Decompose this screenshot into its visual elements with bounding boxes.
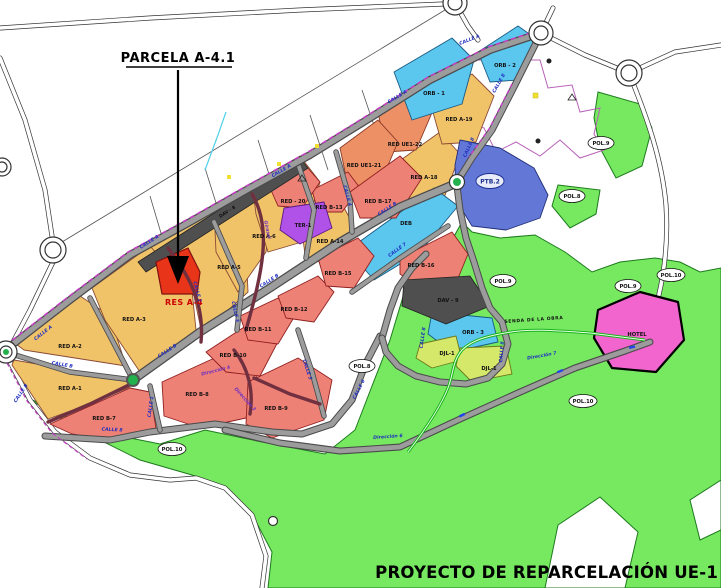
parcel-label-b12: RED B-12: [281, 307, 308, 313]
parcel-label-b7: RED B-7: [92, 416, 116, 422]
parcel-label-b16: RED B-16: [408, 263, 435, 269]
zone-label-pol9: POL.9: [494, 279, 511, 285]
yellow-marker-icon: [277, 162, 281, 166]
parcel-label-a3: RED A-3: [122, 317, 146, 323]
parcel-label-a14: RED A-14: [316, 239, 343, 245]
stream-line: [205, 112, 226, 170]
parcel-label-a19: RED A-19: [445, 117, 472, 123]
street-label-calle-a: CALLE A: [459, 33, 482, 47]
reparcelacion-map: POL.9 POL.8 POL.9 POL.8 POL.10 POL.9 POL…: [0, 0, 721, 588]
parcel-label-b11: RED B-11: [245, 327, 272, 333]
parcel-label-djl1: DJL-1: [439, 351, 455, 357]
zone-label-pol10: POL.10: [661, 273, 682, 279]
parcel-label-ue1-21: RED UE1-21: [347, 163, 382, 169]
parcel-label-ue1-22: RED UE1-22: [388, 142, 423, 148]
parcel-label-b9: RED B-9: [264, 406, 288, 412]
page-title: PROYECTO DE REPARCELACIÓN UE-1: [375, 563, 718, 582]
parcel-label-b10: RED B-10: [220, 353, 247, 359]
zone-label-pol10: POL.10: [162, 447, 183, 453]
parcel-label-ter1: TER-1: [295, 223, 312, 229]
parcel-label-b17: RED B-17: [365, 199, 392, 205]
zone-label-pol8: POL.8: [353, 364, 370, 370]
parcel-label-red20: RED - 20: [281, 199, 306, 205]
parcel-label-a18: RED A-18: [410, 175, 437, 181]
parcel-label-dav9: DAV - 9: [437, 298, 459, 304]
parcel-label-hotel: HOTEL: [627, 332, 647, 338]
zone-label-pol9: POL.9: [592, 141, 609, 147]
map-canvas: POL.9 POL.8 POL.9 POL.8 POL.10 POL.9 POL…: [0, 0, 721, 588]
parcel-label-djl1: DJL-1: [481, 366, 497, 372]
parcel-label-b15: RED B-15: [325, 271, 352, 277]
zone-label-pol9: POL.9: [619, 284, 636, 290]
parcel-label-b8: RED B-8: [185, 392, 209, 398]
parcel-label-orb3: ORB - 3: [462, 330, 484, 336]
street-label-calle-8: CALLE 8: [101, 426, 123, 433]
parcel-label-a2: RED A-2: [58, 344, 82, 350]
parcel-label-a5: RED A-5: [217, 265, 241, 271]
parcel-label-deb: DEB: [400, 221, 412, 227]
parcel-label-orb2: ORB - 2: [494, 63, 516, 69]
yellow-marker-icon: [227, 175, 231, 179]
parcel-label-a6: RED A-6: [252, 234, 276, 240]
zone-label-pol10: POL.10: [573, 399, 594, 405]
parcel-label-a1: RED A-1: [58, 386, 82, 392]
dot-marker-icon: [536, 139, 541, 144]
parcel-label-ptb2: PTB.2: [480, 179, 500, 186]
yellow-marker-icon: [533, 93, 538, 98]
dot-marker-icon: [547, 59, 552, 64]
parcel-label-orb1: ORB - 1: [423, 91, 445, 97]
roundabout-green-west: [127, 374, 139, 386]
callout-label: PARCELA A-4.1: [121, 51, 236, 66]
yellow-marker-icon: [315, 144, 319, 148]
zone-label-pol8: POL.8: [563, 194, 580, 200]
parcel-label-b13: RED B-13: [316, 205, 343, 211]
